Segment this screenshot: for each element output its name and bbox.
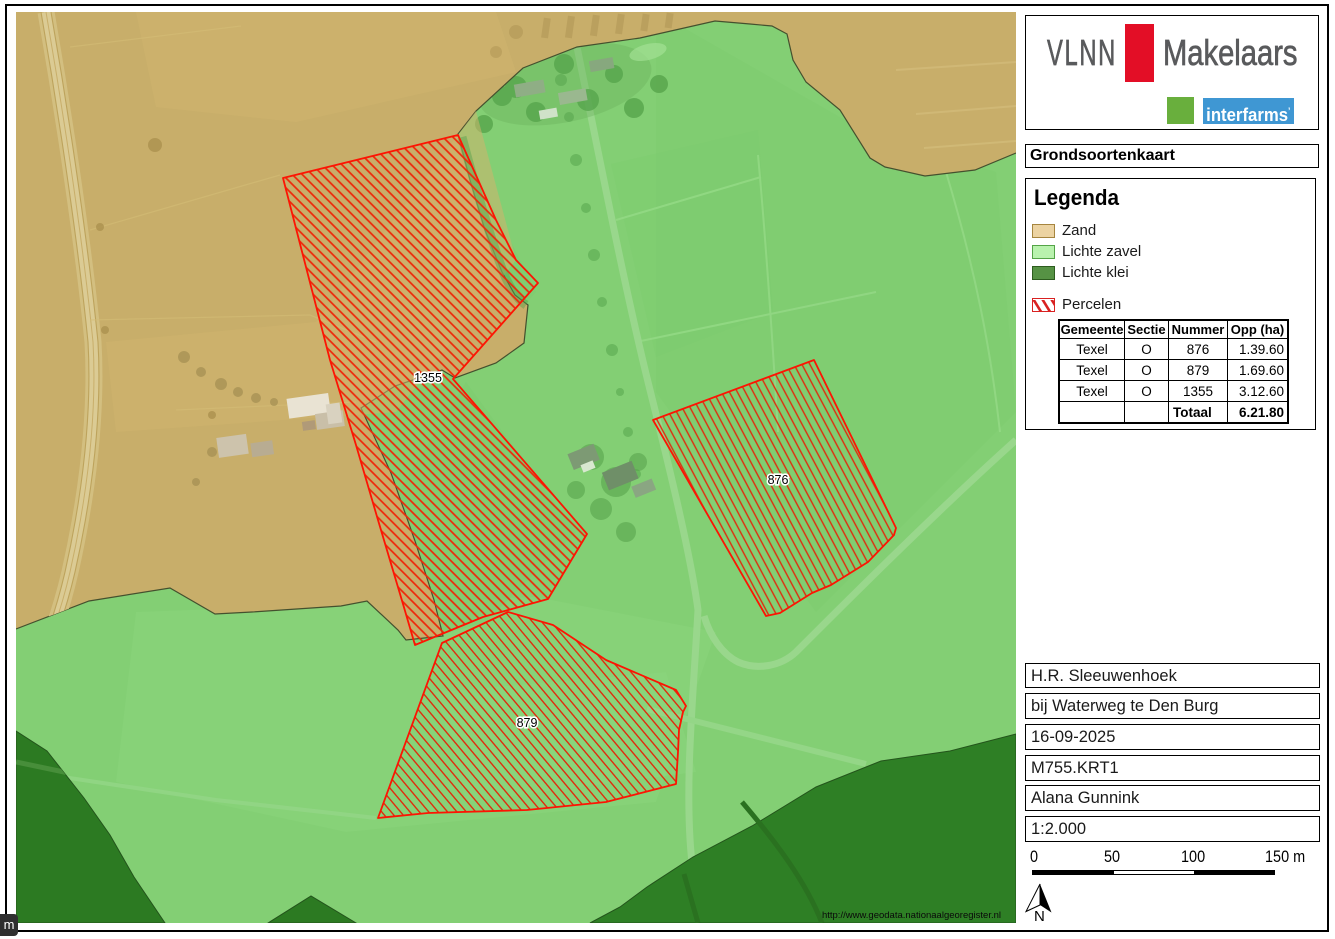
svg-text:http://www.geodata.nationaalge: http://www.geodata.nationaalgeoregister.… — [822, 910, 1001, 921]
svg-text:876: 876 — [768, 473, 789, 487]
svg-text:1355: 1355 — [414, 371, 442, 385]
svg-text:879: 879 — [517, 716, 538, 730]
svg-text:N: N — [1034, 908, 1045, 925]
